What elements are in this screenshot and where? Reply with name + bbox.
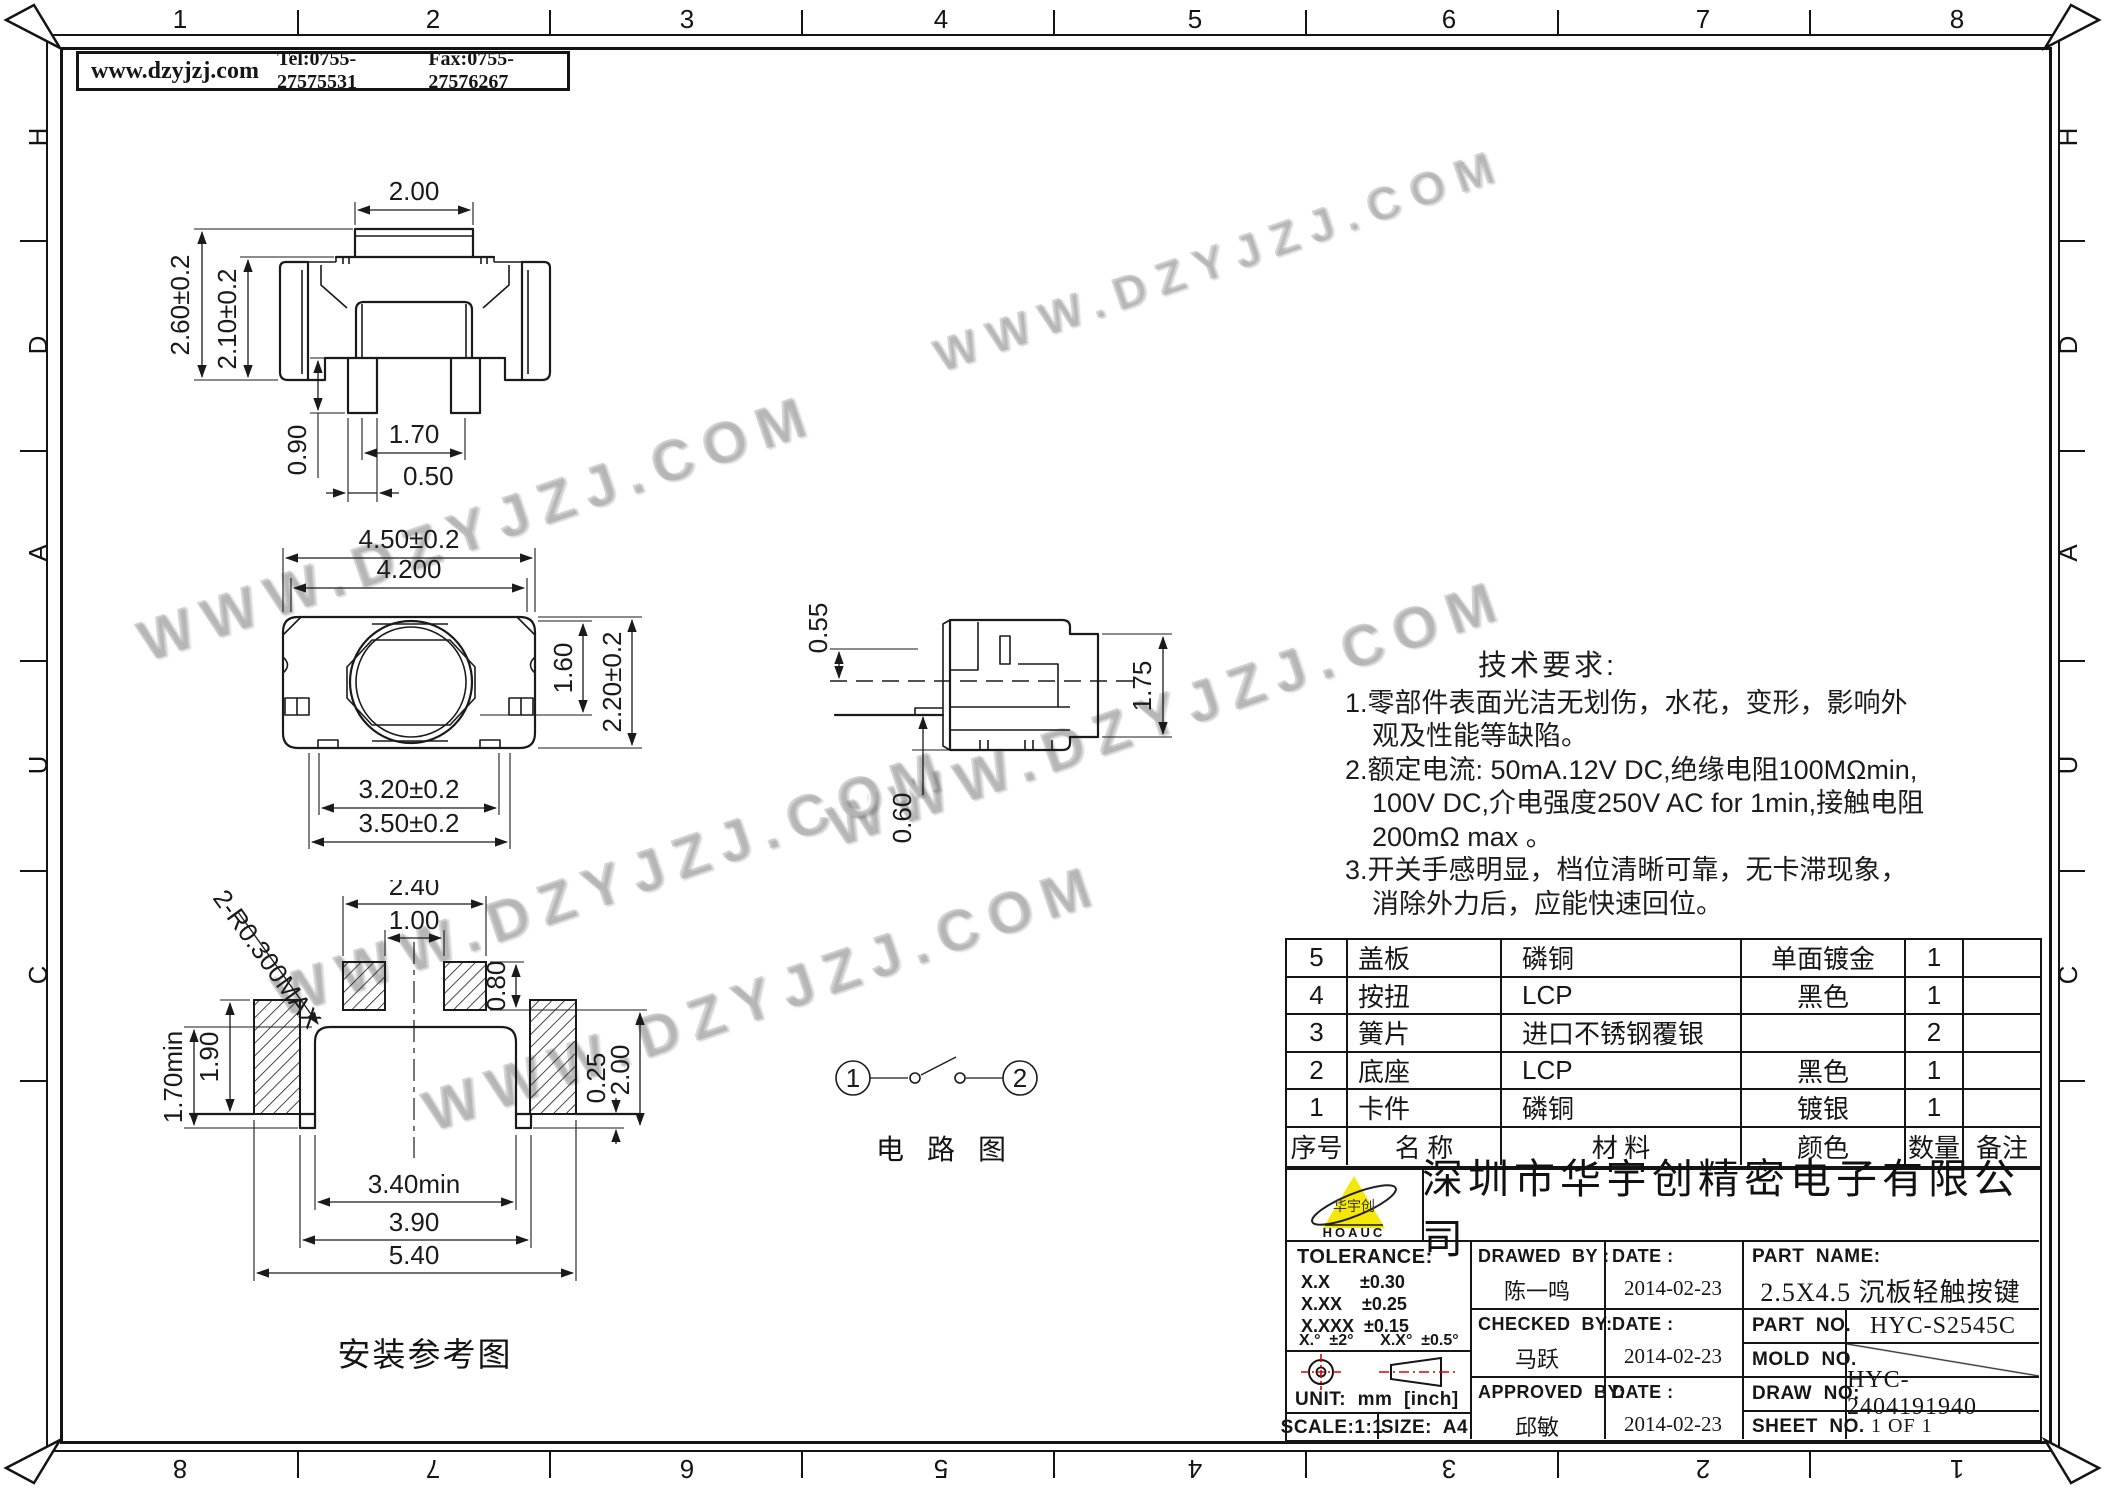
tech-req-line: 2.额定电流: 50mA.12V DC,绝缘电阻100MΩmin, bbox=[1345, 754, 2021, 788]
part-no: 4 bbox=[1287, 978, 1348, 1016]
zone-tick bbox=[297, 10, 299, 36]
part-material: LCP bbox=[1502, 1053, 1742, 1091]
tolerance-line: X.X ±0.30 bbox=[1301, 1272, 1405, 1293]
zone-label-right: A bbox=[2051, 531, 2085, 575]
dim-mount-opening: 3.40min bbox=[368, 1169, 461, 1199]
zone-label-left: A bbox=[21, 531, 55, 575]
zone-tick bbox=[2059, 450, 2085, 452]
tolerance-line: X.XX ±0.25 bbox=[1301, 1294, 1407, 1315]
zone-tick bbox=[2059, 1080, 2085, 1082]
tech-req-line: 1.零部件表面光洁无划伤，水花，变形，影响外 bbox=[1345, 687, 2021, 721]
part-material: 磷铜 bbox=[1502, 1090, 1742, 1128]
zone-tick bbox=[801, 10, 803, 36]
dim-mount-side-pad: 1.90 bbox=[194, 1032, 224, 1083]
part-name: 按扭 bbox=[1348, 978, 1502, 1016]
approved-by-name: 邱敏 bbox=[1470, 1410, 1604, 1442]
circuit-diagram: 1 2 bbox=[818, 1040, 1078, 1135]
draw-no-value: HYC-2404191940 bbox=[1847, 1378, 2039, 1410]
scale-label: SCALE:1:1 bbox=[1287, 1414, 1377, 1441]
zone-label-bottom: 4 bbox=[1173, 1452, 1217, 1486]
zone-label-top: 6 bbox=[1427, 2, 1471, 36]
part-no: 5 bbox=[1287, 940, 1348, 978]
zone-label-bottom: 6 bbox=[665, 1452, 709, 1486]
circuit-terminal-1: 1 bbox=[846, 1063, 860, 1093]
part-note bbox=[1964, 1053, 2040, 1091]
part-color bbox=[1742, 1015, 1906, 1053]
tech-req-line: 200mΩ max 。 bbox=[1345, 821, 2021, 855]
size-label: SIZE: A4 bbox=[1379, 1414, 1470, 1441]
circuit-caption: 电 路 图 bbox=[855, 1128, 1035, 1168]
date-label: DATE : bbox=[1612, 1246, 1674, 1267]
company-name: 深圳市华宇创精密电子有限公司 bbox=[1422, 1170, 2039, 1240]
zone-label-top: 2 bbox=[411, 2, 455, 36]
zone-tick bbox=[1305, 10, 1307, 36]
zone-tick bbox=[297, 1452, 299, 1478]
part-no: 3 bbox=[1287, 1015, 1348, 1053]
zone-tick bbox=[20, 1080, 46, 1082]
part-name: 底座 bbox=[1348, 1053, 1502, 1091]
zone-tick bbox=[549, 10, 551, 36]
part-no: 2 bbox=[1287, 1053, 1348, 1091]
zone-tick bbox=[20, 660, 46, 662]
zone-tick bbox=[20, 870, 46, 872]
dim-front-pin-pitch: 1.70 bbox=[389, 419, 440, 449]
tech-req-line: 消除外力后，应能快速回位。 bbox=[1345, 888, 2021, 922]
date-label: DATE : bbox=[1612, 1382, 1674, 1403]
zone-label-right: D bbox=[2051, 323, 2085, 367]
dim-top-total-width: 4.50±0.2 bbox=[358, 524, 459, 554]
dim-mount-pad-height: 0.80 bbox=[481, 961, 511, 1012]
zone-label-left: U bbox=[21, 743, 55, 787]
zone-tick bbox=[2059, 660, 2085, 662]
dim-top-button: 1.60 bbox=[548, 643, 578, 694]
draw-no-label: DRAW NO: bbox=[1752, 1378, 1845, 1410]
part-name: 簧片 bbox=[1348, 1015, 1502, 1053]
part-name: 卡件 bbox=[1348, 1090, 1502, 1128]
part-note bbox=[1964, 1090, 2040, 1128]
zone-tick bbox=[20, 450, 46, 452]
zone-tick bbox=[2059, 870, 2085, 872]
sheet-no-label: SHEET NO. bbox=[1752, 1412, 1845, 1441]
dim-front-body-height: 2.10±0.2 bbox=[212, 268, 242, 369]
part-material: 磷铜 bbox=[1502, 940, 1742, 978]
part-color: 镀银 bbox=[1742, 1090, 1906, 1128]
part-qty: 1 bbox=[1906, 940, 1964, 978]
part-qty: 1 bbox=[1906, 978, 1964, 1016]
zone-tick bbox=[1809, 10, 1811, 36]
zone-label-top: 3 bbox=[665, 2, 709, 36]
zone-tick bbox=[2059, 240, 2085, 242]
side-view-drawing: 0.55 1.75 0.60 bbox=[800, 590, 1200, 920]
zone-label-left: C bbox=[21, 953, 55, 997]
col-header-no: 序号 bbox=[1287, 1128, 1348, 1166]
vendor-website: www.dzyjzj.com bbox=[91, 58, 259, 85]
zone-label-right: U bbox=[2051, 743, 2085, 787]
date-approved: 2014-02-23 bbox=[1604, 1412, 1742, 1437]
dim-mount-inner-width: 3.90 bbox=[389, 1207, 440, 1237]
zone-label-bottom: 5 bbox=[919, 1452, 963, 1486]
corner-arrow-icon bbox=[2, 1434, 66, 1486]
dim-side-bottom: 0.60 bbox=[887, 793, 917, 844]
vendor-tel: Tel:0755-27575531 bbox=[277, 48, 410, 94]
corner-arrow-icon bbox=[2, 2, 66, 54]
part-color: 黑色 bbox=[1742, 1053, 1906, 1091]
zone-label-bottom: 7 bbox=[411, 1452, 455, 1486]
mold-no-label: MOLD NO. bbox=[1752, 1344, 1845, 1376]
tech-req-line: 100V DC,介电强度250V AC for 1min,接触电阻 bbox=[1345, 787, 2021, 821]
front-view-drawing: 2.00 2.60±0.2 2.10±0.2 0.90 1.70 0.50 bbox=[140, 130, 620, 520]
unit-label: UNIT: mm [inch] bbox=[1295, 1389, 1459, 1411]
tolerance-angle-line: X.° ±2° X.X° ±0.5° bbox=[1299, 1332, 1459, 1350]
dim-top-base-inner: 3.20±0.2 bbox=[358, 774, 459, 804]
zone-label-top: 8 bbox=[1935, 2, 1979, 36]
approved-by-label: APPROVED BY: bbox=[1478, 1382, 1625, 1403]
vendor-header: www.dzyjzj.com Tel:0755-27575531 Fax:075… bbox=[76, 51, 570, 91]
mounting-view-caption: 安装参考图 bbox=[330, 1328, 520, 1376]
zone-tick bbox=[1557, 1452, 1559, 1478]
zone-label-right: H bbox=[2051, 115, 2085, 159]
zone-tick bbox=[549, 1452, 551, 1478]
part-qty: 2 bbox=[1906, 1015, 1964, 1053]
part-qty: 1 bbox=[1906, 1090, 1964, 1128]
part-no: 1 bbox=[1287, 1090, 1348, 1128]
zone-label-left: D bbox=[21, 323, 55, 367]
part-name-value: 2.5X4.5 沉板轻触按键 bbox=[1742, 1272, 2039, 1309]
dim-mount-pad-span: 2.40 bbox=[389, 880, 440, 901]
corner-arrow-icon bbox=[2039, 2, 2103, 54]
date-checked: 2014-02-23 bbox=[1604, 1344, 1742, 1369]
part-note bbox=[1964, 940, 2040, 978]
zone-tick bbox=[1053, 10, 1055, 36]
zone-label-top: 7 bbox=[1681, 2, 1725, 36]
corner-arrow-icon bbox=[2039, 1434, 2103, 1486]
dim-front-pin-width: 0.50 bbox=[403, 461, 454, 491]
logo-text: 华宇创 bbox=[1333, 1198, 1375, 1214]
projection-symbols bbox=[1291, 1354, 1467, 1390]
mounting-view-drawing: 2-R0.300MAX 2.40 1.00 0.80 1.90 1.70min … bbox=[150, 880, 650, 1300]
zone-tick bbox=[1809, 1452, 1811, 1478]
title-block: 华宇创 HOAUC 深圳市华宇创精密电子有限公司 TOLERANCE: X.X … bbox=[1285, 1168, 2042, 1442]
zone-label-top: 4 bbox=[919, 2, 963, 36]
part-material: 进口不锈钢覆银 bbox=[1502, 1015, 1742, 1053]
zone-tick bbox=[801, 1452, 803, 1478]
dim-top-base-outer: 3.50±0.2 bbox=[358, 808, 459, 838]
parts-table: 5 盖板 磷铜 单面镀金 1 4 按扭 LCP 黑色 1 3 簧片 进口不锈钢覆… bbox=[1285, 938, 2042, 1168]
zone-label-top: 1 bbox=[158, 2, 202, 36]
tech-req-line: 3.开关手感明显，档位清晰可靠，无卡滞现象， bbox=[1345, 854, 2021, 888]
dim-front-total-height: 2.60±0.2 bbox=[165, 254, 195, 355]
part-note bbox=[1964, 978, 2040, 1016]
part-name: 盖板 bbox=[1348, 940, 1502, 978]
part-color: 单面镀金 bbox=[1742, 940, 1906, 978]
zone-tick bbox=[1305, 1452, 1307, 1478]
part-qty: 1 bbox=[1906, 1053, 1964, 1091]
tech-req-line: 观及性能等缺陷。 bbox=[1345, 720, 2021, 754]
drawing-sheet: WWW.DZYJZJ.COM WWW.DZYJZJ.COM WWW.DZYJZJ… bbox=[0, 0, 2105, 1488]
zone-label-top: 5 bbox=[1173, 2, 1217, 36]
logo-subtext: HOAUC bbox=[1323, 1225, 1386, 1240]
dim-side-top: 0.55 bbox=[803, 603, 833, 654]
date-drawed: 2014-02-23 bbox=[1604, 1276, 1742, 1301]
checked-by-label: CHECKED BY: bbox=[1478, 1314, 1613, 1335]
dim-front-button-width: 2.00 bbox=[389, 176, 440, 206]
dim-mount-pad-gap: 1.00 bbox=[389, 905, 440, 935]
company-logo: 华宇创 HOAUC bbox=[1287, 1170, 1422, 1240]
zone-label-bottom: 2 bbox=[1681, 1452, 1725, 1486]
dim-mount-side-height: 2.00 bbox=[605, 1045, 635, 1096]
dim-mount-outer-width: 5.40 bbox=[389, 1240, 440, 1270]
part-note bbox=[1964, 1015, 2040, 1053]
dim-top-inner-width: 4.200 bbox=[376, 554, 441, 584]
technical-requirements: 技术要求: 1.零部件表面光洁无划伤，水花，变形，影响外 观及性能等缺陷。 2.… bbox=[1345, 650, 2021, 921]
date-label: DATE : bbox=[1612, 1314, 1674, 1335]
dim-top-depth: 2.20±0.2 bbox=[597, 631, 627, 732]
dim-mount-side-min: 1.70min bbox=[158, 1031, 188, 1124]
top-view-drawing: 4.50±0.2 4.200 1.60 2.20±0.2 3.20±0.2 3.… bbox=[180, 520, 660, 910]
part-name-label: PART NAME: bbox=[1752, 1246, 1881, 1268]
zone-label-bottom: 1 bbox=[1935, 1452, 1979, 1486]
drawed-by-name: 陈一鸣 bbox=[1470, 1274, 1604, 1306]
vendor-fax: Fax:0755-27576267 bbox=[428, 48, 567, 94]
zone-label-bottom: 3 bbox=[1427, 1452, 1471, 1486]
tech-req-title: 技术要求: bbox=[1345, 650, 2021, 684]
part-color: 黑色 bbox=[1742, 978, 1906, 1016]
zone-label-left: H bbox=[21, 115, 55, 159]
part-material: LCP bbox=[1502, 978, 1742, 1016]
zone-tick bbox=[20, 240, 46, 242]
drawed-by-label: DRAWED BY : bbox=[1478, 1246, 1610, 1267]
circuit-terminal-2: 2 bbox=[1013, 1063, 1027, 1093]
part-no-value: HYC-S2545C bbox=[1847, 1310, 2039, 1342]
zone-label-right: C bbox=[2051, 953, 2085, 997]
sheet-no-value: 1 OF 1 bbox=[1871, 1412, 2039, 1441]
dim-side-height: 1.75 bbox=[1127, 661, 1157, 712]
zone-label-bottom: 8 bbox=[158, 1452, 202, 1486]
zone-tick bbox=[1557, 10, 1559, 36]
checked-by-name: 马跃 bbox=[1470, 1342, 1604, 1374]
tolerance-label: TOLERANCE: bbox=[1297, 1246, 1433, 1269]
part-no-label: PART NO. bbox=[1752, 1310, 1845, 1342]
zone-tick bbox=[1053, 1452, 1055, 1478]
dim-front-pin-length: 0.90 bbox=[282, 425, 312, 476]
